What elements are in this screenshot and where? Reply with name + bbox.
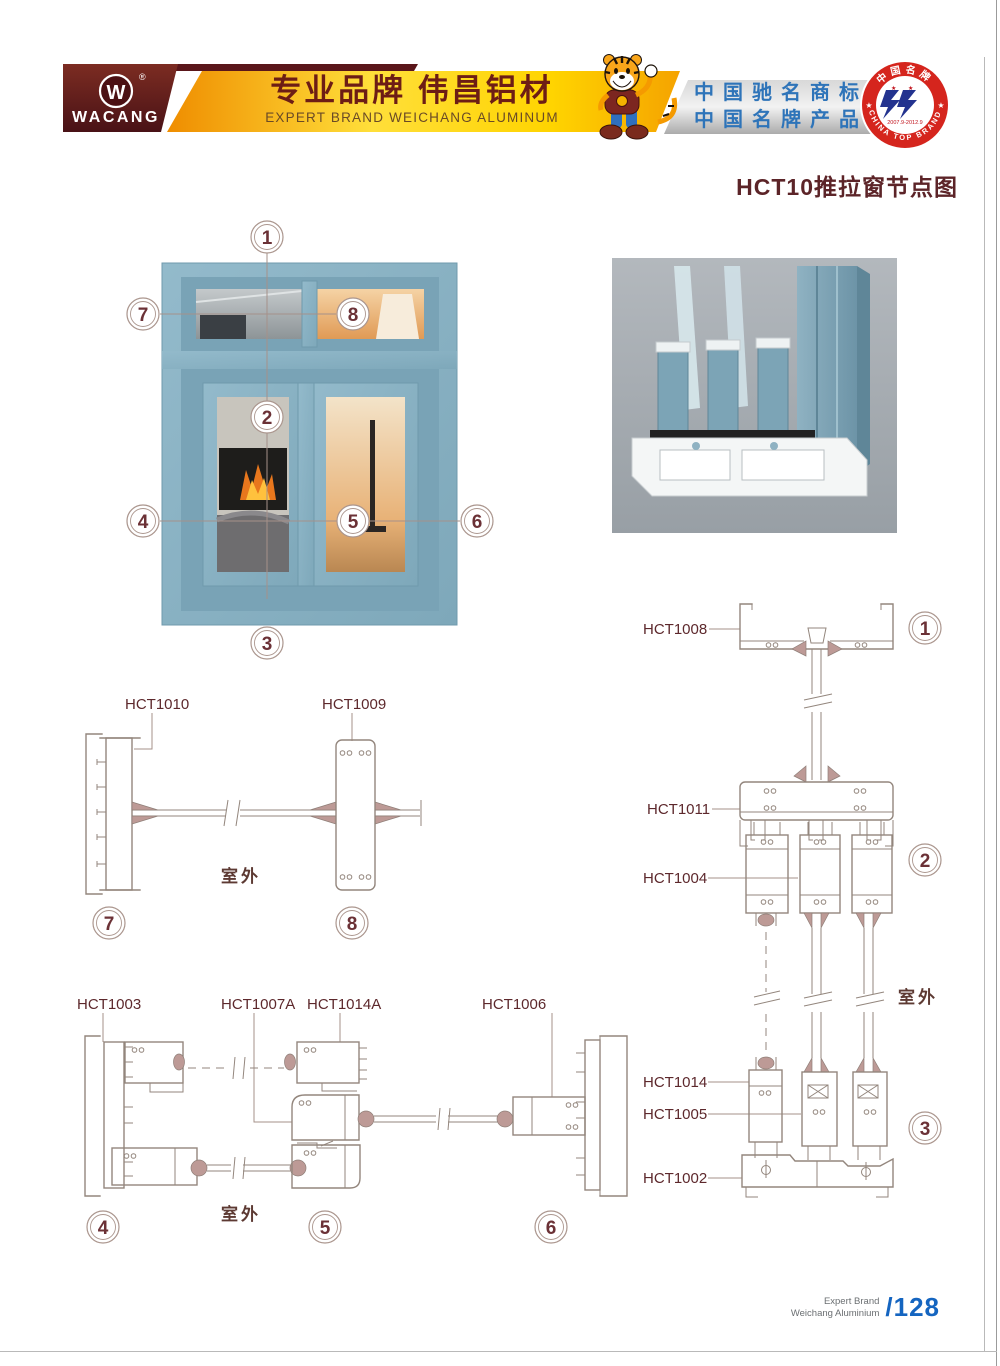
svg-text:★: ★	[908, 85, 913, 92]
profile-hct1006	[513, 1097, 585, 1135]
outdoor-label-78: 室外	[221, 866, 261, 886]
brand-name: WACANG	[72, 109, 160, 126]
svg-text:2: 2	[920, 851, 931, 872]
profile-hct1011	[740, 766, 893, 846]
callout-8: 8	[337, 298, 369, 330]
svg-text:3: 3	[920, 1119, 931, 1140]
callout-1: 1	[251, 221, 283, 253]
profile-hct1014a	[297, 1042, 367, 1091]
svg-text:5: 5	[348, 512, 359, 533]
diagram-vertical-section: HCT1008 HCT1011 HCT1004 HCT1014 HCT1005 …	[635, 595, 965, 1215]
brand-logo-letter: W	[107, 82, 126, 104]
footer-brand-line2: Weichang Aluminium	[791, 1308, 880, 1320]
honor-line2: 中国名牌产品	[694, 107, 868, 131]
sash-top-right	[852, 822, 892, 928]
label-hct1011: HCT1011	[647, 801, 710, 818]
callout-5-detail: 5	[309, 1211, 341, 1243]
callout-3: 3	[251, 627, 283, 659]
banner-slogan-en: EXPERT BRAND WEICHANG ALUMINUM	[265, 110, 559, 125]
render-track-columns	[656, 338, 790, 442]
callout-6-detail: 6	[535, 1211, 567, 1243]
jamb-left-hct1003	[85, 1036, 183, 1196]
svg-text:3: 3	[262, 634, 273, 655]
render-sill-section	[632, 430, 867, 496]
callout-5: 5	[337, 505, 369, 537]
svg-text:6: 6	[546, 1218, 557, 1239]
sash-bottom-right	[853, 1058, 887, 1160]
profile-hct1004-row	[746, 822, 892, 928]
diagram-section-456: HCT1003 HCT1007A HCT1014A HCT1006	[70, 985, 640, 1250]
sash-top-mid	[800, 822, 840, 928]
callout-3-detail: 3	[909, 1112, 941, 1144]
header-banner: W ® WACANG 专业品牌 伟昌铝材 EXPERT BRAND WEICHA…	[0, 0, 1000, 165]
page-border-inner	[984, 57, 985, 1351]
diagram-section-78: HCT1010 HCT1009	[80, 685, 440, 945]
page-number: /128	[885, 1292, 940, 1323]
honor-line1: 中国驰名商标	[694, 80, 868, 104]
svg-text:4: 4	[138, 512, 149, 533]
footer-brand-line1: Expert Brand	[791, 1296, 880, 1308]
profile-render-3d	[612, 258, 897, 533]
sill-profile-hct1002	[742, 1155, 893, 1197]
window-frame	[162, 263, 457, 625]
sash-bottom-mid-hct1005	[802, 1058, 837, 1160]
sash-top-left	[746, 822, 788, 926]
badge-dates: 2007.9-2012.9	[887, 120, 922, 126]
svg-text:5: 5	[320, 1218, 331, 1239]
upper-dashed-run	[174, 1054, 296, 1079]
profile-hct1007a	[292, 1095, 359, 1148]
callout-1-detail: 1	[909, 612, 941, 644]
callout-7-detail: 7	[93, 907, 125, 939]
footer-pagination: Expert Brand Weichang Aluminium /128	[630, 1292, 940, 1323]
page-title: HCT10推拉窗节点图	[736, 168, 958, 202]
label-hct1006: HCT1006	[482, 996, 546, 1013]
callout-8-detail: 8	[336, 907, 368, 939]
badge-star-left: ★	[865, 101, 872, 110]
track-channels	[740, 820, 893, 846]
banner-slogan-cn: 专业品牌 伟昌铝材	[270, 73, 554, 108]
label-hct1009: HCT1009	[322, 696, 386, 713]
svg-text:1: 1	[262, 228, 273, 249]
leader-lines-right	[708, 629, 801, 1178]
glass-run-56	[358, 1108, 513, 1130]
outdoor-label-right: 室外	[898, 987, 938, 1007]
callout-2: 2	[251, 401, 283, 433]
glass-mid-runs	[754, 928, 884, 1058]
callout-2-detail: 2	[909, 844, 941, 876]
footer-brand-text: Expert Brand Weichang Aluminium	[791, 1296, 880, 1320]
lower-row	[112, 1145, 360, 1188]
catalog-page: W ® WACANG 专业品牌 伟昌铝材 EXPERT BRAND WEICHA…	[0, 0, 1000, 1366]
label-hct1002: HCT1002	[643, 1170, 707, 1187]
svg-text:1: 1	[920, 619, 931, 640]
label-hct1005: HCT1005	[643, 1106, 707, 1123]
registered-mark: ®	[139, 72, 146, 82]
outdoor-label-456: 室外	[221, 1204, 261, 1224]
top-brand-badge: 中国名牌 CHINA TOP BRAND ★ ★ ★ ★ 2007.9-2012…	[860, 60, 950, 150]
svg-text:4: 4	[98, 1218, 109, 1239]
label-hct1014a: HCT1014A	[307, 996, 381, 1013]
label-hct1004: HCT1004	[643, 870, 707, 887]
callout-4: 4	[127, 505, 159, 537]
svg-text:8: 8	[347, 914, 358, 935]
svg-text:7: 7	[138, 305, 149, 326]
jamb-right	[576, 1036, 627, 1196]
svg-text:8: 8	[348, 305, 359, 326]
svg-text:2: 2	[262, 408, 273, 429]
page-border-bottom	[0, 1351, 997, 1352]
svg-text:★: ★	[891, 85, 896, 92]
sash-right-glass	[326, 397, 405, 572]
label-hct1008: HCT1008	[643, 621, 707, 638]
glass-run-78	[132, 800, 421, 826]
callout-4-detail: 4	[87, 1211, 119, 1243]
leader-lines-456	[103, 1013, 552, 1122]
label-hct1007a: HCT1007A	[221, 996, 295, 1013]
label-hct1014: HCT1014	[643, 1074, 707, 1091]
mullion-profile-hct1009	[336, 740, 375, 890]
glass-upper	[804, 649, 832, 780]
callout-6: 6	[461, 505, 493, 537]
window-photo: 1 7 8 2 4 5 6	[120, 215, 500, 665]
svg-text:6: 6	[472, 512, 483, 533]
profile-bottom-row	[742, 1057, 893, 1197]
svg-text:7: 7	[104, 914, 115, 935]
callout-7: 7	[127, 298, 159, 330]
badge-star-right: ★	[937, 101, 944, 110]
jamb-profile-hct1010	[86, 734, 140, 894]
label-hct1010: HCT1010	[125, 696, 189, 713]
label-hct1003: HCT1003	[77, 996, 141, 1013]
page-border-outer	[996, 0, 997, 1366]
profile-hct1008	[740, 604, 893, 656]
